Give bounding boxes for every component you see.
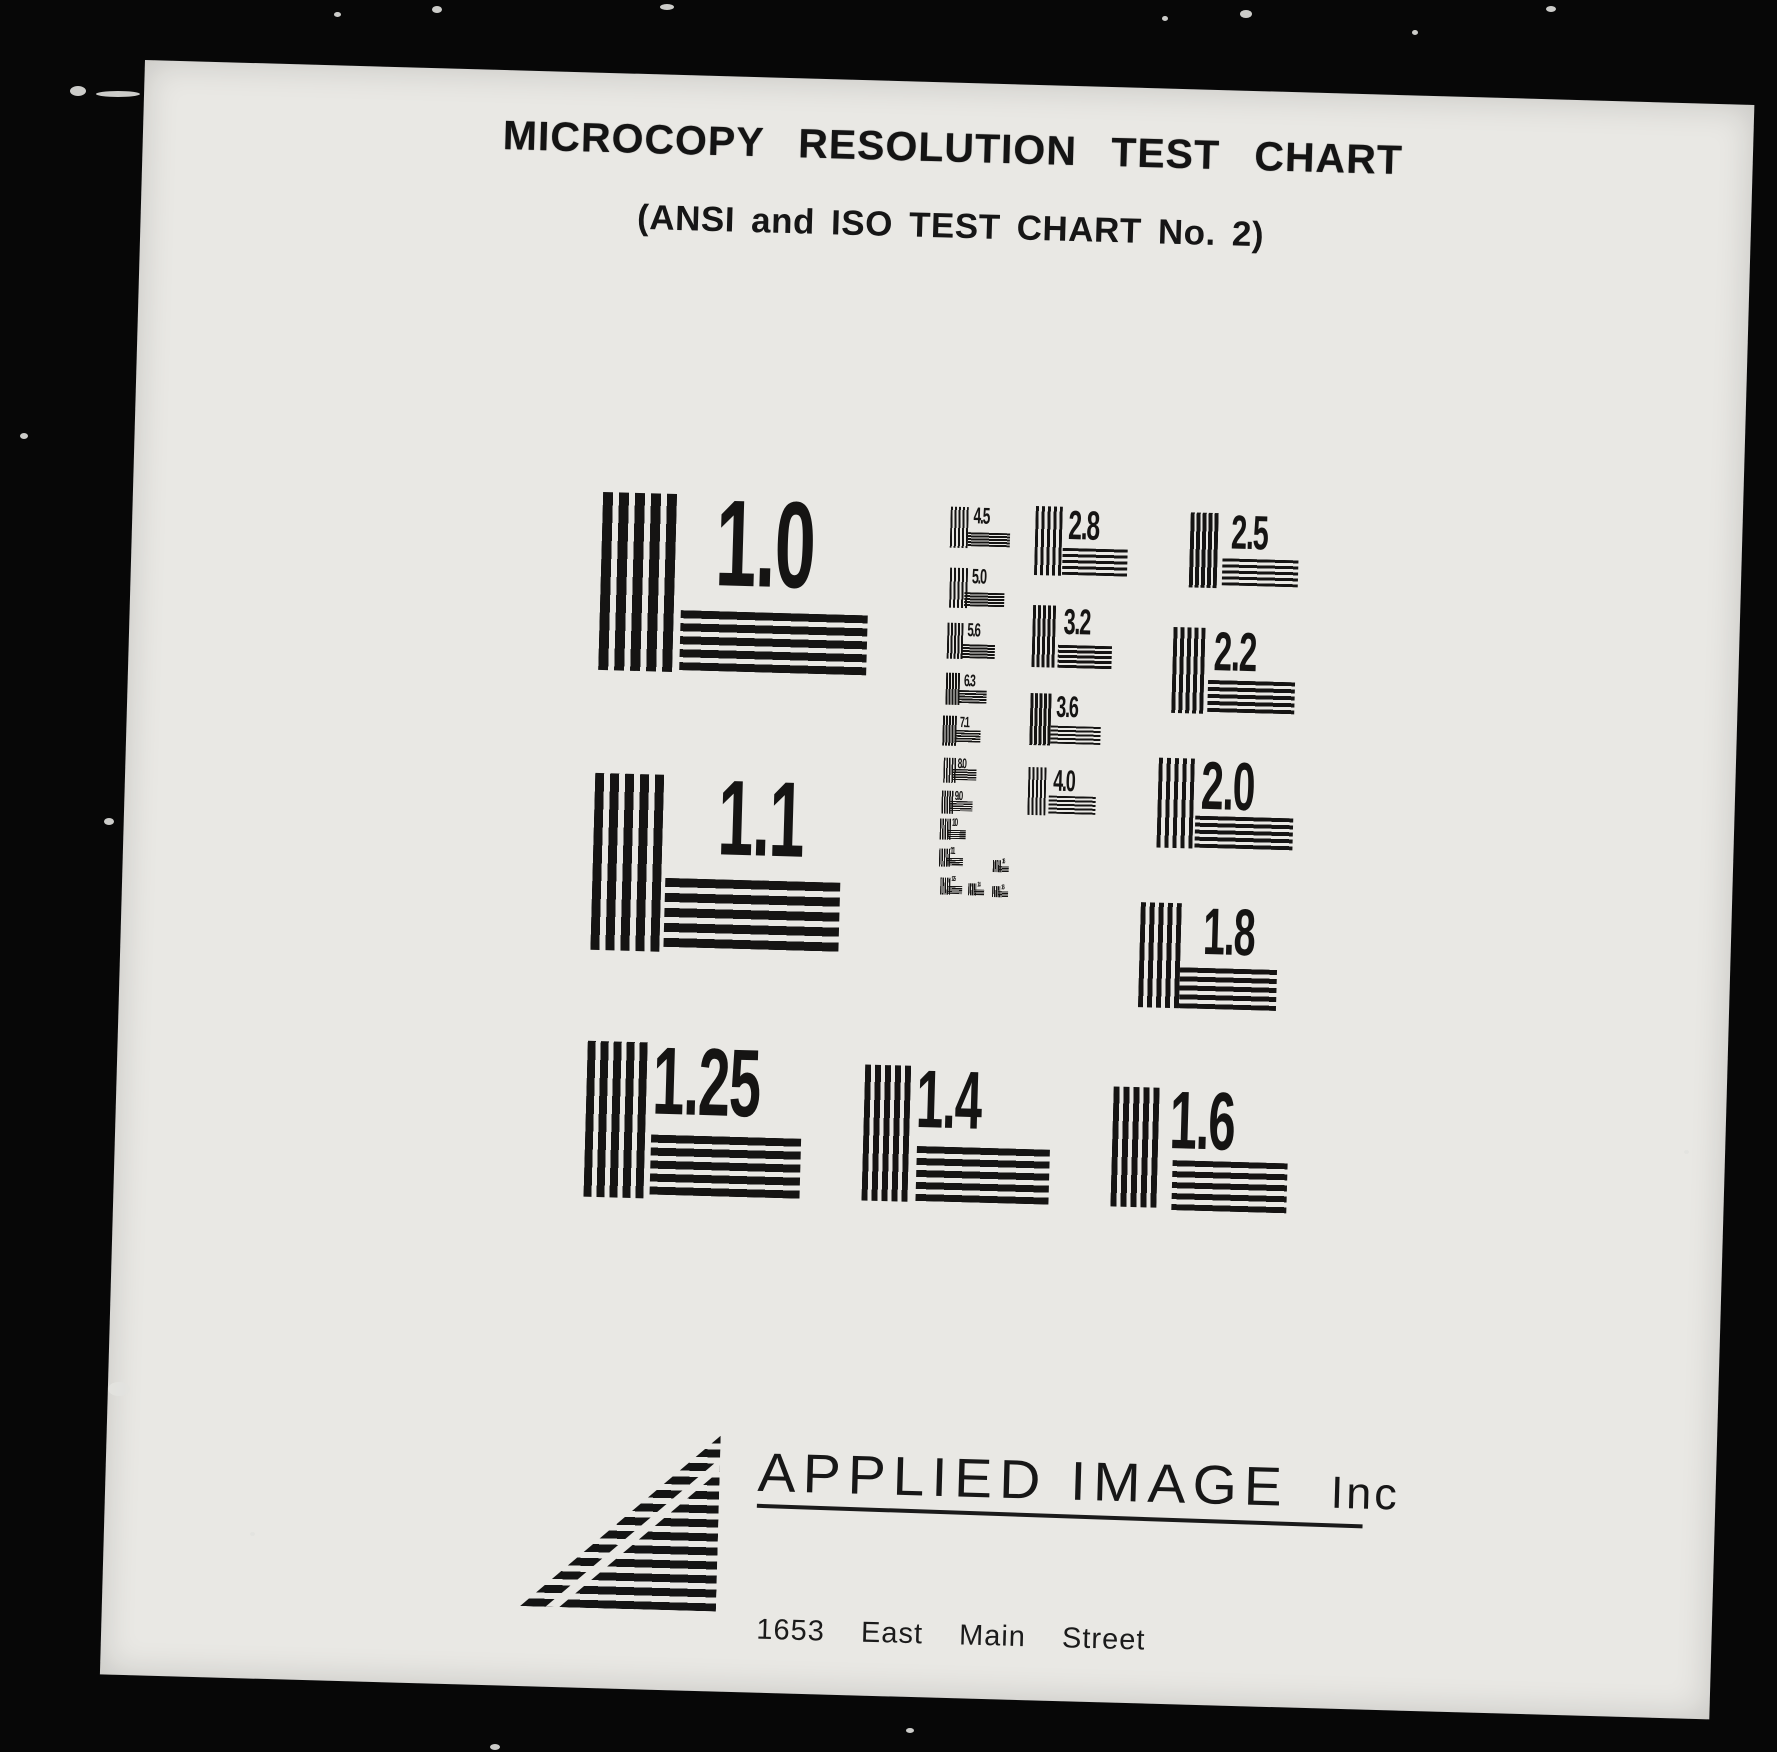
scanned-microfilm-frame: MICROCOPY RESOLUTION TEST CHART (ANSI an… (0, 0, 1777, 1752)
address-street: 1653 East Main Street (756, 1608, 1464, 1673)
company-address: 1653 East Main Street Rochester, New Yor… (742, 1518, 1467, 1752)
pattern-value-label: 4.0 (1053, 770, 1075, 794)
dust-speck (250, 1532, 255, 1536)
pattern-value-label: 9.0 (955, 791, 963, 801)
dust-speck (660, 4, 674, 10)
vertical-bars (1027, 767, 1046, 815)
vertical-bars (1171, 627, 1205, 714)
horizontal-bars (998, 891, 1008, 897)
pattern-value-label: 5.6 (967, 624, 980, 639)
dust-speck (1240, 10, 1252, 18)
pattern-value-label: 4.5 (973, 507, 989, 525)
chart-title: MICROCOPY RESOLUTION TEST CHART (447, 110, 1458, 185)
pattern-value-label: 3.6 (1056, 696, 1078, 720)
dust-speck (906, 1728, 914, 1733)
address-city: Rochester, New York 14609 USA (752, 1743, 1460, 1752)
pattern-value-label: 1.25 (652, 1045, 761, 1123)
horizontal-bars (1048, 796, 1095, 815)
horizontal-bars (1062, 548, 1128, 577)
horizontal-bars (968, 532, 1010, 547)
pattern-value-label: 3.2 (1063, 608, 1090, 637)
horizontal-bars (1179, 967, 1277, 1011)
pattern-value-label: 7.1 (960, 717, 969, 729)
vertical-bars (1029, 693, 1051, 746)
pattern-value-label: 1.1 (717, 776, 805, 862)
dust-speck (334, 12, 341, 17)
vertical-bars (950, 507, 969, 548)
pattern-value-label: 11 (950, 848, 954, 856)
chart-subtitle: (ANSI and ISO TEST CHART No. 2) (445, 192, 1456, 260)
vertical-bars (1031, 605, 1056, 668)
vertical-bars (1156, 758, 1194, 849)
pattern-value-label: 2.0 (1200, 760, 1255, 814)
dust-speck (432, 6, 442, 13)
vertical-bars (1034, 506, 1063, 576)
dust-speck (1162, 16, 1168, 21)
horizontal-bars (954, 730, 980, 743)
chart-heading: MICROCOPY RESOLUTION TEST CHART (ANSI an… (447, 110, 1458, 185)
pattern-value-label: 12.5 (951, 877, 955, 883)
horizontal-bars (962, 644, 995, 659)
horizontal-bars (1171, 1160, 1287, 1213)
vertical-bars (1189, 512, 1219, 588)
horizontal-bars (1057, 645, 1112, 669)
horizontal-bars (1207, 680, 1295, 714)
vertical-bars (861, 1065, 911, 1202)
company-name: APPLIED IMAGEInc (757, 1440, 1519, 1527)
pattern-value-label: 1.0 (714, 496, 816, 595)
pattern-value-label: 2.5 (1231, 515, 1268, 553)
pattern-value-label: 1.6 (1169, 1089, 1236, 1155)
company-name-suffix: Inc (1330, 1467, 1400, 1521)
dust-speck (104, 818, 114, 825)
pattern-value-label: 10 (952, 819, 957, 828)
pattern-value-label: 2.2 (1213, 630, 1256, 674)
horizontal-bars (650, 1135, 802, 1199)
pattern-value-label: 1.8 (1202, 906, 1255, 959)
pattern-value-label: 5.0 (972, 569, 986, 586)
dust-speck (490, 1744, 500, 1750)
applied-image-logo-triangle (520, 1430, 721, 1611)
dust-speck (1684, 1150, 1689, 1154)
horizontal-bars (1050, 726, 1100, 745)
horizontal-bars (947, 858, 963, 866)
dust-speck (20, 433, 28, 439)
dust-speck (1412, 30, 1418, 35)
vertical-bars (590, 773, 664, 952)
dust-speck (96, 91, 140, 97)
pattern-value-label: 16 (1002, 859, 1004, 865)
horizontal-bars (958, 690, 986, 704)
pattern-value-label: 8.0 (958, 758, 966, 769)
horizontal-bars (1222, 558, 1299, 587)
pattern-value-label: 14 (977, 883, 979, 889)
test-chart-page: MICROCOPY RESOLUTION TEST CHART (ANSI an… (100, 60, 1754, 1719)
vertical-bars (1110, 1086, 1159, 1207)
horizontal-bars (663, 878, 840, 952)
horizontal-bars (915, 1146, 1049, 1205)
vertical-bars (598, 492, 677, 672)
dust-speck (108, 1382, 130, 1396)
pattern-value-label: 2.8 (1068, 510, 1099, 543)
resolution-patterns: 1.01.11.251.41.61.82.02.22.52.83.23.64.0… (145, 60, 1754, 105)
pattern-value-label: 6.3 (964, 674, 975, 688)
horizontal-bars (948, 886, 962, 894)
horizontal-bars (974, 889, 984, 895)
pattern-value-label: 16 (1001, 885, 1003, 891)
horizontal-bars (948, 830, 966, 839)
horizontal-bars (679, 610, 868, 675)
dust-speck (1546, 6, 1556, 12)
vertical-bars (583, 1041, 647, 1199)
horizontal-bars (964, 592, 1004, 607)
pattern-value-label: 1.4 (915, 1068, 982, 1134)
dust-speck (70, 86, 86, 96)
vertical-bars (1138, 902, 1182, 1008)
horizontal-bars (999, 866, 1009, 872)
